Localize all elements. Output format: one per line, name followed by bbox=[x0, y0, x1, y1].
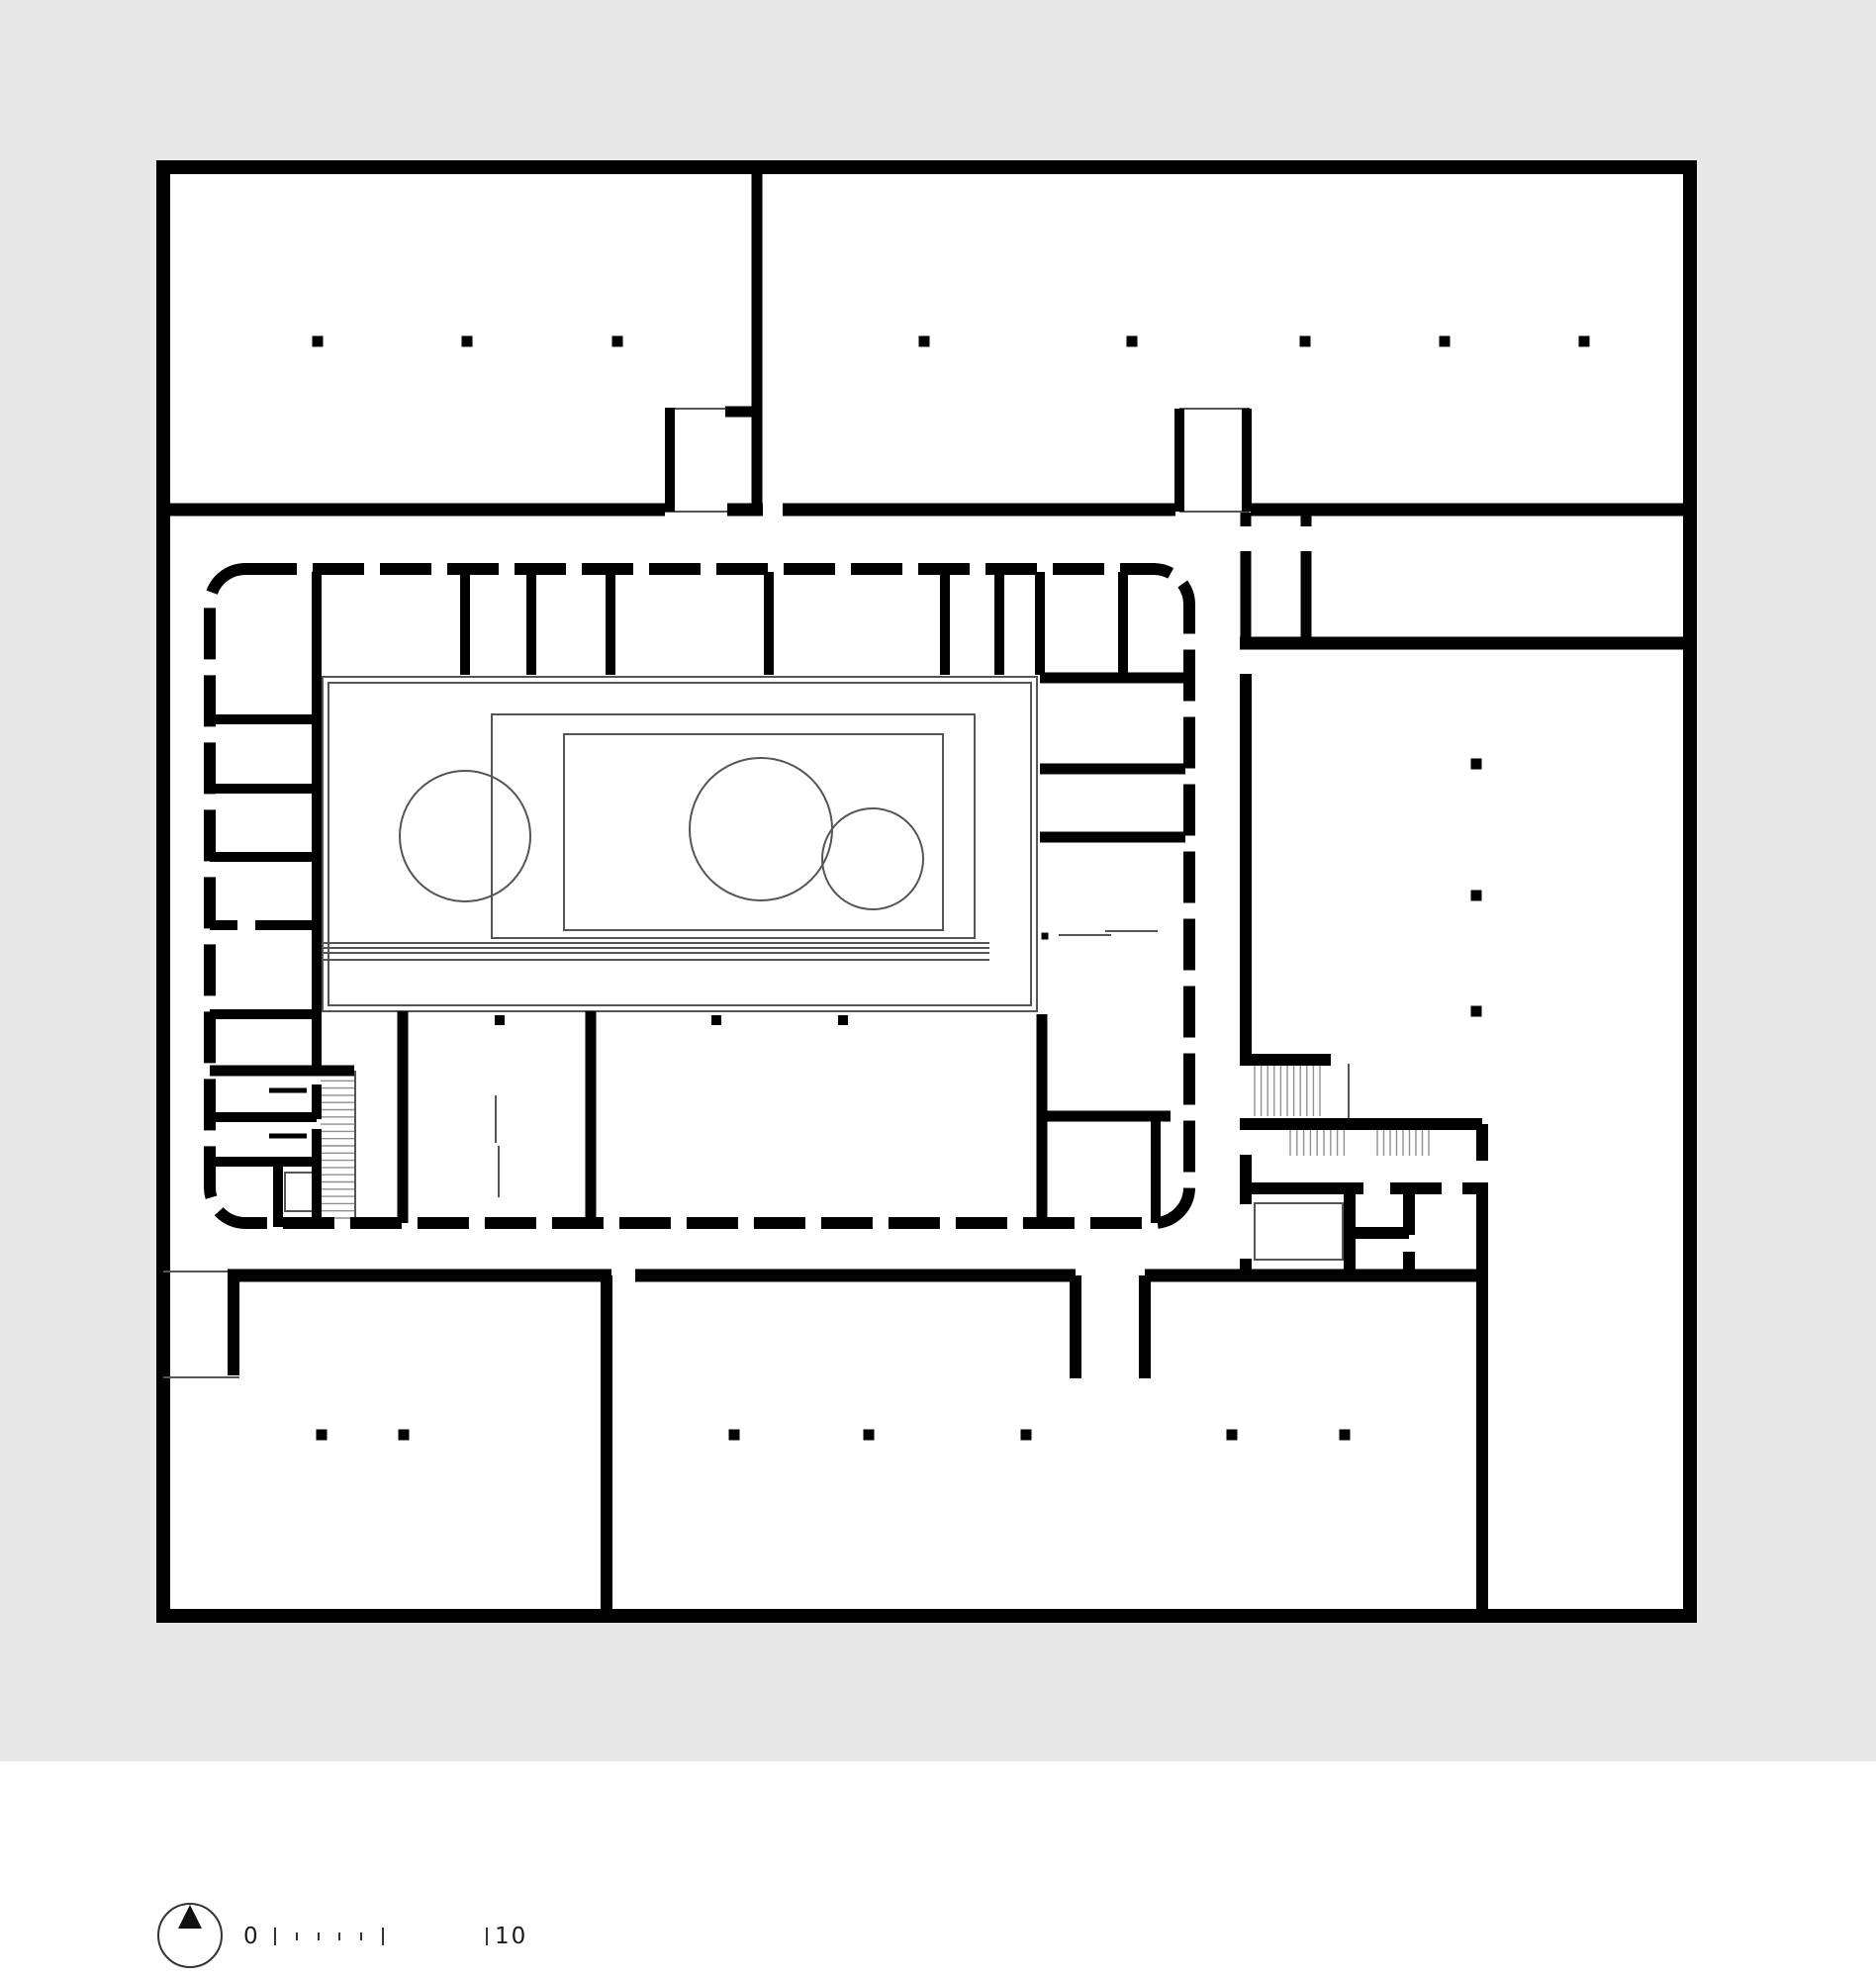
column-dot bbox=[1440, 336, 1451, 347]
column-dot bbox=[462, 336, 473, 347]
column-dot bbox=[711, 1015, 721, 1025]
column-dot bbox=[1300, 336, 1311, 347]
north-arrow-triangle-icon bbox=[178, 1905, 202, 1929]
column-dot bbox=[1471, 759, 1482, 770]
column-dot bbox=[612, 336, 623, 347]
column-dot bbox=[1021, 1430, 1032, 1441]
column-dot bbox=[313, 336, 324, 347]
column-dot bbox=[1042, 933, 1049, 940]
scale-label-ten: 10 bbox=[495, 1924, 527, 1949]
column-dot bbox=[1127, 336, 1138, 347]
column-dot bbox=[1340, 1430, 1351, 1441]
column-dot bbox=[399, 1430, 410, 1441]
floor-plan-drawing: 0 10 bbox=[0, 0, 1876, 1979]
north-arrow bbox=[158, 1904, 222, 1967]
column-dot bbox=[317, 1430, 328, 1441]
column-dot bbox=[1227, 1430, 1238, 1441]
paper-area bbox=[163, 167, 1690, 1616]
scale-bar: 0 10 bbox=[243, 1924, 527, 1949]
scale-label-zero: 0 bbox=[243, 1924, 260, 1949]
column-dot bbox=[919, 336, 930, 347]
column-dot bbox=[864, 1430, 875, 1441]
column-dot bbox=[1471, 1006, 1482, 1017]
column-dot bbox=[1579, 336, 1590, 347]
column-dot bbox=[495, 1015, 505, 1025]
scale-bar-ticks bbox=[275, 1928, 487, 1945]
column-dot bbox=[1471, 891, 1482, 901]
column-dot bbox=[729, 1430, 740, 1441]
column-dot bbox=[838, 1015, 848, 1025]
